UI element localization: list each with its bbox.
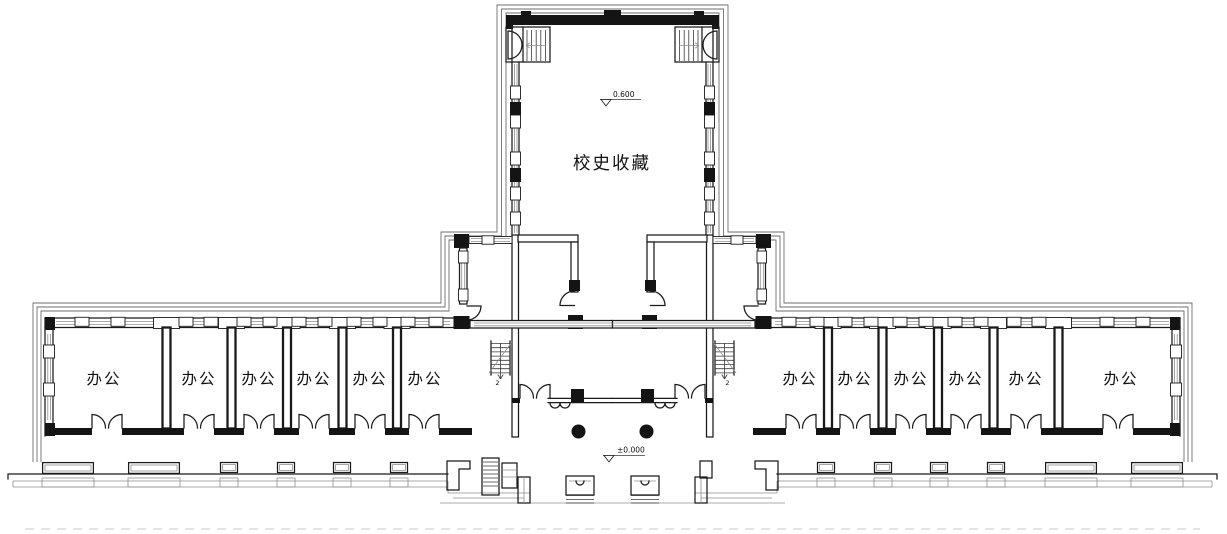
level-marker-ground-value: ±0.000 xyxy=(617,446,645,455)
eave-contour-lines xyxy=(33,5,613,462)
level-marker-upper-value: 0.600 xyxy=(613,90,635,99)
side-step-details xyxy=(25,458,1200,529)
room-label-left-4: 办公 xyxy=(296,370,331,388)
corridor-wall xyxy=(470,321,613,329)
entrance xyxy=(512,385,613,439)
lobby-side-stair xyxy=(489,341,512,379)
central-hall-structure xyxy=(506,10,613,437)
room-label-right-6: 办公 xyxy=(1103,370,1138,388)
stair-mark-right: 2 xyxy=(725,379,729,387)
room-label-right-2: 办公 xyxy=(837,370,872,388)
office-doors xyxy=(92,415,439,429)
room-label-left-3: 办公 xyxy=(241,370,276,388)
floor-plan-page: 校史收藏 0.600 ±0.000 办公 办公 办公 办公 办公 办公 办公 办… xyxy=(0,0,1227,534)
plan-right-half xyxy=(613,5,1218,503)
planters xyxy=(42,463,408,488)
walkway-lines xyxy=(8,474,613,503)
room-label-right-5: 办公 xyxy=(1008,370,1043,388)
level-marker-ground: ±0.000 xyxy=(603,446,645,463)
level-marker-upper: 0.600 xyxy=(600,90,641,106)
junction xyxy=(454,234,513,329)
room-label-left-1: 办公 xyxy=(86,370,121,388)
stair-mark-left: 2 xyxy=(495,379,499,387)
stair-core xyxy=(518,235,583,329)
room-label-right-4: 办公 xyxy=(948,370,983,388)
room-label-left-5: 办公 xyxy=(352,370,387,388)
room-label-right-3: 办公 xyxy=(893,370,928,388)
plan-left-half xyxy=(8,5,613,503)
room-label-left-6: 办公 xyxy=(407,370,442,388)
porch-column xyxy=(572,425,586,439)
labels: 校史收藏 0.600 ±0.000 办公 办公 办公 办公 办公 办公 办公 办… xyxy=(86,90,1138,462)
hall-label: 校史收藏 xyxy=(573,154,651,174)
room-label-left-2: 办公 xyxy=(181,370,216,388)
room-label-right-1: 办公 xyxy=(782,370,817,388)
entrance-steps xyxy=(447,461,594,503)
floor-plan-canvas: 校史收藏 0.600 ±0.000 办公 办公 办公 办公 办公 办公 办公 办… xyxy=(0,0,1227,534)
